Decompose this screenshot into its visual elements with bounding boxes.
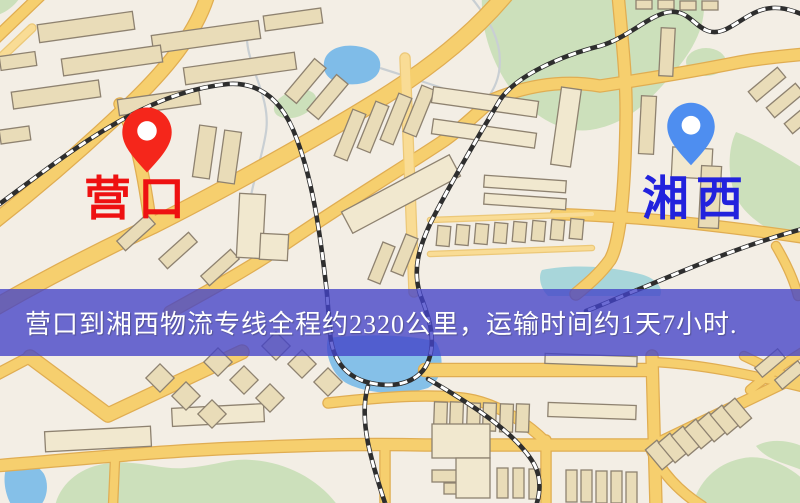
destination-city-label: 湘西 <box>642 177 750 224</box>
destination-pin-hole <box>682 116 701 135</box>
map-canvas[interactable] <box>0 0 800 503</box>
origin-city-label: 营口 <box>84 177 192 224</box>
route-info-banner: 营口到湘西物流专线全程约2320公里，运输时间约1天7小时. <box>0 289 800 356</box>
destination-pin-icon[interactable] <box>666 101 716 167</box>
logistics-route-map: 营口 湘西 营口到湘西物流专线全程约2320公里，运输时间约1天7小时. <box>0 0 800 503</box>
origin-pin-hole <box>137 121 157 140</box>
route-info-text: 营口到湘西物流专线全程约2320公里，运输时间约1天7小时. <box>25 304 738 341</box>
origin-pin-icon[interactable] <box>121 106 173 174</box>
